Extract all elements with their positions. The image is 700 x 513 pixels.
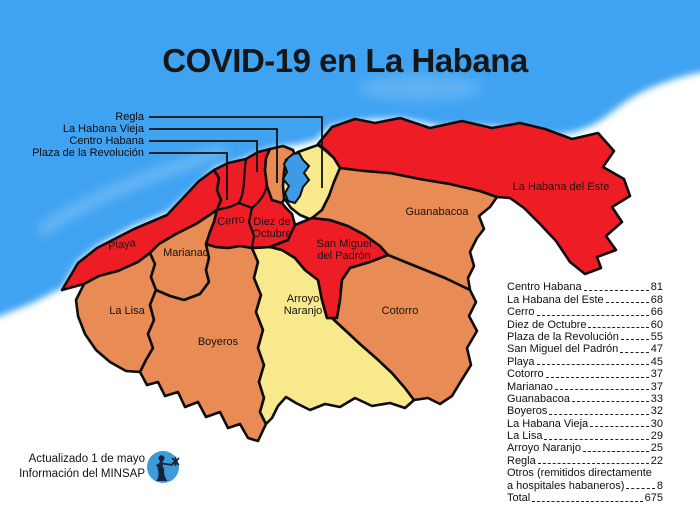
stats-leader bbox=[537, 364, 649, 365]
stats-row: Otros (remitidos directamente bbox=[507, 467, 663, 479]
map-label-guanabacoa: Guanabacoa bbox=[406, 206, 469, 218]
map-label-arroyo-naranjo: Arroyo Naranjo bbox=[284, 293, 323, 317]
stats-value: 8 bbox=[657, 480, 663, 492]
stats-row: Arroyo Naranjo25 bbox=[507, 442, 663, 454]
stats-name: Total bbox=[507, 492, 530, 504]
stats-list: Centro Habana81La Habana del Este68Cerro… bbox=[507, 281, 663, 504]
stats-value: 25 bbox=[651, 442, 663, 454]
stats-row: La Lisa29 bbox=[507, 430, 663, 442]
stats-value: 22 bbox=[651, 455, 663, 467]
attribution-line2: Información del MINSAP bbox=[18, 467, 145, 482]
stats-name: Cotorro bbox=[507, 368, 544, 380]
stats-row: Centro Habana81 bbox=[507, 281, 663, 293]
stats-value: 37 bbox=[651, 368, 663, 380]
minsap-logo bbox=[147, 451, 179, 483]
stats-row: Guanabacoa33 bbox=[507, 393, 663, 405]
stats-value: 55 bbox=[651, 331, 663, 343]
stats-leader bbox=[546, 377, 649, 378]
stats-leader bbox=[588, 327, 648, 328]
stats-name: La Habana del Este bbox=[507, 294, 604, 306]
stats-value: 66 bbox=[651, 306, 663, 318]
stats-value: 37 bbox=[651, 381, 663, 393]
stats-value: 81 bbox=[651, 281, 663, 293]
stats-name: Centro Habana bbox=[507, 281, 582, 293]
stats-leader bbox=[537, 315, 649, 316]
map-label-diez-de-octubre: Diez de Octubre bbox=[252, 216, 291, 240]
stats-name: a hospitales habaneros) bbox=[507, 480, 624, 492]
stats-name: Boyeros bbox=[507, 405, 547, 417]
stats-row: Playa45 bbox=[507, 355, 663, 367]
stats-row: Boyeros32 bbox=[507, 405, 663, 417]
stats-row: La Habana Vieja30 bbox=[507, 417, 663, 429]
map-label-marianao: Marianao bbox=[163, 247, 209, 259]
stats-name: Arroyo Naranjo bbox=[507, 442, 581, 454]
stats-row: San Miguel del Padrón47 bbox=[507, 343, 663, 355]
stats-row: Cotorro37 bbox=[507, 368, 663, 380]
page-title: COVID-19 en La Habana bbox=[130, 42, 560, 80]
stats-row: La Habana del Este68 bbox=[507, 293, 663, 305]
stats-name: Cerro bbox=[507, 306, 535, 318]
map-label-habana-del-este: La Habana del Este bbox=[513, 181, 610, 193]
stats-leader bbox=[532, 501, 642, 502]
stats-name: La Habana Vieja bbox=[507, 418, 588, 430]
map-label-san-miguel: San Miguel del Padrón bbox=[316, 238, 371, 262]
map-label-la-lisa: La Lisa bbox=[109, 305, 144, 317]
stats-row: Regla22 bbox=[507, 454, 663, 466]
map-label-cotorro: Cotorro bbox=[382, 305, 419, 317]
stats-leader bbox=[626, 488, 654, 489]
stats-leader bbox=[584, 290, 649, 291]
poster-canvas: COVID-19 en La Habana Regla La Habana Vi… bbox=[0, 0, 700, 513]
stats-leader bbox=[572, 401, 649, 402]
stats-value: 47 bbox=[651, 343, 663, 355]
stats-leader bbox=[620, 352, 648, 353]
stats-value: 68 bbox=[651, 294, 663, 306]
callout-label-plaza: Plaza de la Revolución bbox=[0, 147, 144, 159]
stats-row: Marianao37 bbox=[507, 380, 663, 392]
stats-name: Otros (remitidos directamente bbox=[507, 467, 652, 479]
stats-value: 675 bbox=[645, 492, 663, 504]
stats-name: La Lisa bbox=[507, 430, 542, 442]
callout-label-habana-vieja: La Habana Vieja bbox=[0, 123, 144, 135]
stats-row: Plaza de la Revolución55 bbox=[507, 331, 663, 343]
stats-value: 29 bbox=[651, 430, 663, 442]
stats-row: Diez de Octubre60 bbox=[507, 318, 663, 330]
stats-leader bbox=[590, 426, 649, 427]
stats-leader bbox=[544, 439, 648, 440]
stats-name: Plaza de la Revolución bbox=[507, 331, 619, 343]
stats-name: San Miguel del Padrón bbox=[507, 343, 618, 355]
stats-value: 30 bbox=[651, 418, 663, 430]
stats-name: Guanabacoa bbox=[507, 393, 570, 405]
stats-row: a hospitales habaneros)8 bbox=[507, 479, 663, 491]
stats-value: 45 bbox=[651, 356, 663, 368]
stats-value: 60 bbox=[651, 319, 663, 331]
callout-label-regla: Regla bbox=[0, 111, 144, 123]
stats-leader bbox=[555, 389, 649, 390]
stats-name: Regla bbox=[507, 455, 536, 467]
stats-value: 32 bbox=[651, 405, 663, 417]
attribution-line1: Actualizado 1 de mayo bbox=[18, 452, 145, 467]
callout-label-centro-habana: Centro Habana bbox=[0, 135, 144, 147]
stats-leader bbox=[583, 451, 649, 452]
stats-name: Playa bbox=[507, 356, 535, 368]
stats-row: Total675 bbox=[507, 492, 663, 504]
stats-name: Marianao bbox=[507, 381, 553, 393]
stats-leader bbox=[606, 302, 649, 303]
stats-leader bbox=[549, 414, 648, 415]
map-label-boyeros: Boyeros bbox=[198, 336, 238, 348]
stats-value: 33 bbox=[651, 393, 663, 405]
attribution: Actualizado 1 de mayo Información del MI… bbox=[18, 452, 145, 481]
stats-row: Cerro66 bbox=[507, 306, 663, 318]
stats-leader bbox=[621, 339, 649, 340]
stats-leader bbox=[538, 463, 649, 464]
stats-name: Diez de Octubre bbox=[507, 319, 586, 331]
